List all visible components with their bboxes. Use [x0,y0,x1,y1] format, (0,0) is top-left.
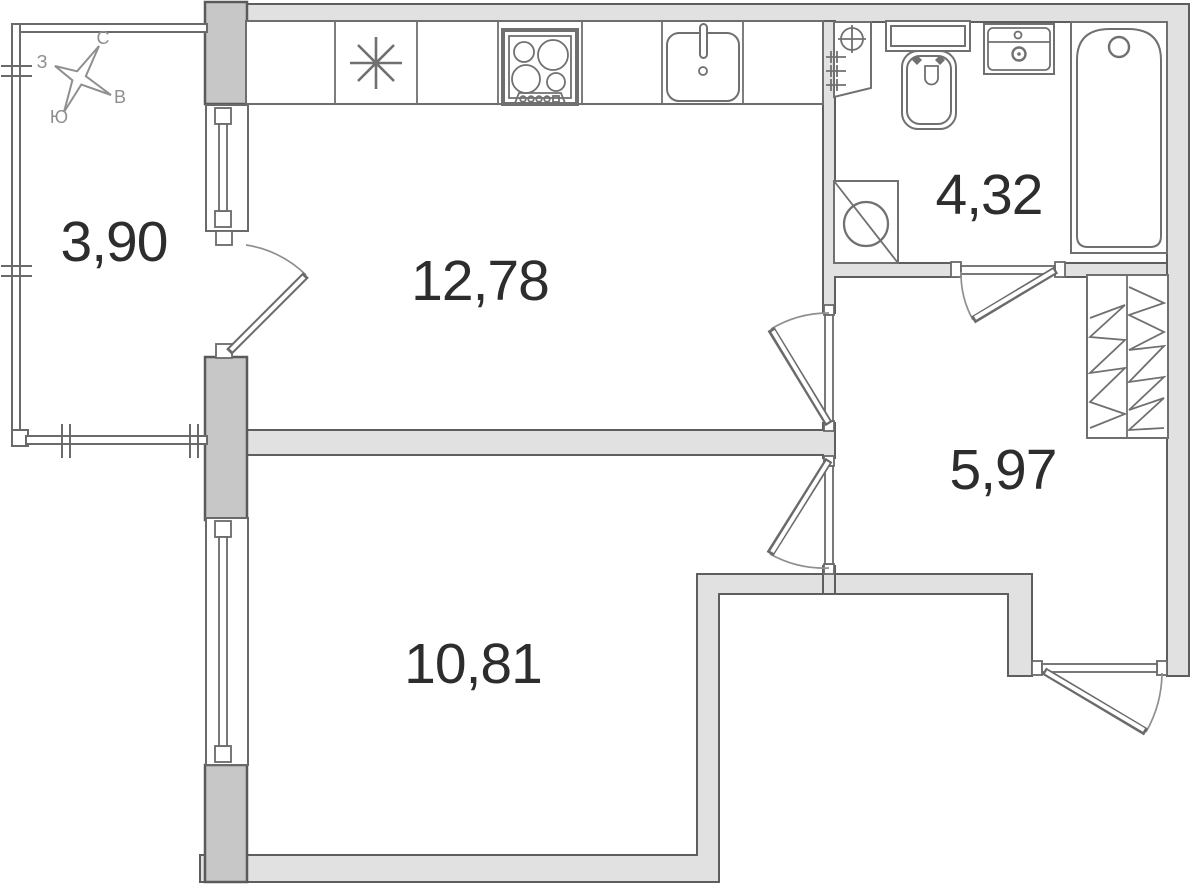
wall-exterior-bottom-run [200,574,1032,882]
hallway: 5,97 [950,275,1168,502]
kitchen-door [771,305,834,431]
balcony-door [216,231,306,358]
balcony: С З В Ю 3,90 [1,24,207,458]
room-label-hallway: 5,97 [950,438,1057,502]
balcony-door-leaf [229,275,306,352]
washing-machine-icon [834,181,898,263]
floor-plan: С З В Ю 3,90 [0,0,1192,884]
room-window [206,518,248,765]
toilet-icon [886,21,970,129]
washbasin-icon [984,24,1054,74]
bathroom-door-swing-arc [961,272,973,320]
compass-star [55,46,111,112]
compass-label-north: С [97,28,110,48]
bathroom-door [951,262,1065,320]
balcony-wall-top [12,24,207,32]
entrance-door-leaf [1044,671,1146,732]
kitchen-sink-icon [667,24,739,101]
stove-icon [503,30,577,104]
room-door-leaf [770,460,829,554]
wall-pillar-middle-left [205,357,247,520]
room-label-kitchen: 12,78 [411,249,549,313]
entrance-door [1032,661,1167,732]
wall-pillar-bottom-left [205,765,247,882]
wall-kitchen-room-divider [247,423,835,458]
room-label-balcony: 3,90 [61,210,168,274]
balcony-window-left [12,24,20,444]
kitchen-door-leaf [771,329,829,424]
compass-label-west: З [37,52,48,72]
entrance-door-swing-arc [1146,673,1162,732]
compass-rose-icon: С З В Ю [37,28,126,127]
compass-label-south: Ю [50,107,68,127]
balcony-window-bottom [26,436,207,444]
kitchen-balcony-window [206,105,248,231]
bathtub-icon [1071,22,1167,253]
room-door-swing-arc [770,554,829,568]
balcony-door-swing-arc [246,245,306,275]
bathroom-door-leaf [973,270,1056,320]
living-room: 10,81 [404,632,542,696]
wall-pillar-top-left [205,2,247,104]
kitchen-door-swing-arc [771,313,829,329]
wardrobe-icon [1087,275,1168,438]
room-label-bathroom: 4,32 [936,163,1043,227]
room-door [770,456,834,574]
kitchen: 12,78 [246,21,823,313]
compass-label-east: В [114,87,126,107]
room-label-living-room: 10,81 [404,632,542,696]
bathroom: 4,32 [826,21,1167,263]
